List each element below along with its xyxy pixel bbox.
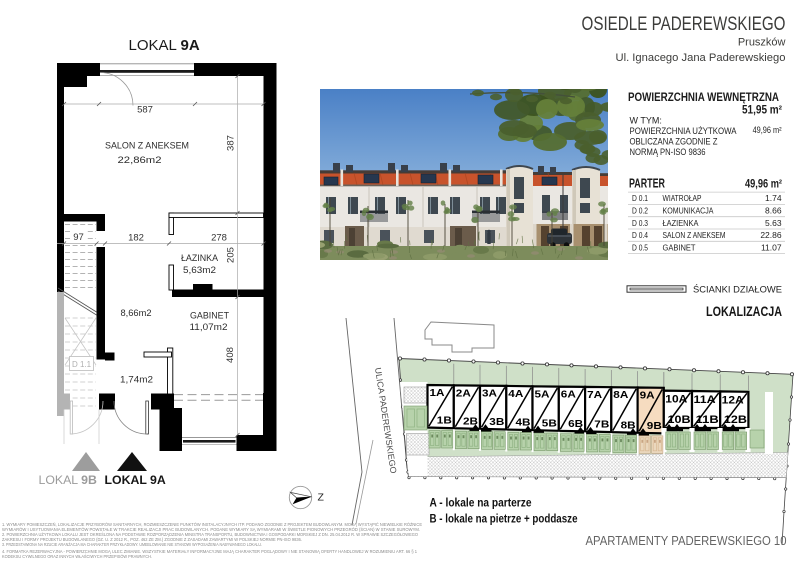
svg-text:POWIERZCHNIA WEWNĘTRZNA: POWIERZCHNIA WEWNĘTRZNA: [628, 90, 779, 104]
svg-text:SALON Z ANEKSEM: SALON Z ANEKSEM: [663, 230, 726, 240]
svg-text:1.74: 1.74: [765, 193, 782, 203]
svg-text:12B: 12B: [724, 414, 747, 426]
svg-text:LOKAL 9B: LOKAL 9B: [39, 473, 97, 487]
svg-text:LOKAL 9A: LOKAL 9A: [105, 473, 166, 487]
svg-text:ŁAZIENKA: ŁAZIENKA: [663, 218, 699, 228]
svg-text:B - lokale na pietrze + poddas: B - lokale na pietrze + poddasze: [430, 512, 578, 526]
svg-text:49,96 m²: 49,96 m²: [745, 179, 782, 191]
svg-text:205: 205: [226, 247, 237, 263]
svg-text:D 0.3: D 0.3: [632, 218, 648, 228]
svg-text:5,63m2: 5,63m2: [183, 265, 216, 276]
svg-text:11A: 11A: [694, 394, 716, 406]
svg-text:A - lokale na parterze: A - lokale na parterze: [430, 496, 532, 510]
svg-text:387: 387: [226, 135, 237, 151]
svg-text:22,86m2: 22,86m2: [118, 155, 162, 166]
svg-text:11B: 11B: [696, 414, 719, 426]
svg-text:Ul. Ignacego Jana Paderewskieg: Ul. Ignacego Jana Paderewskiego: [616, 52, 786, 64]
svg-text:49,96 m²: 49,96 m²: [753, 125, 782, 135]
svg-text:3A: 3A: [482, 388, 497, 400]
svg-text:GABINET: GABINET: [190, 311, 229, 322]
svg-text:51,95 m²: 51,95 m²: [742, 105, 782, 117]
svg-text:408: 408: [225, 347, 236, 363]
svg-text:Z: Z: [318, 492, 325, 504]
svg-text:587: 587: [137, 105, 153, 116]
svg-text:9B: 9B: [647, 420, 662, 432]
svg-text:11,07m2: 11,07m2: [190, 322, 228, 333]
svg-text:5A: 5A: [535, 388, 550, 400]
svg-text:KODEKSU CYWILNEGO ORAZ INNYCH: KODEKSU CYWILNEGO ORAZ INNYCH WŁAŚCIWYCH…: [2, 554, 152, 559]
svg-text:LOKALIZACJA: LOKALIZACJA: [706, 304, 782, 319]
svg-text:97: 97: [73, 232, 84, 243]
svg-text:12A: 12A: [722, 394, 744, 406]
svg-text:D 0.5: D 0.5: [632, 242, 648, 252]
svg-text:3B: 3B: [489, 416, 504, 428]
svg-text:1,74m2: 1,74m2: [120, 375, 153, 386]
svg-text:SALON Z ANEKSEM: SALON Z ANEKSEM: [105, 141, 189, 152]
svg-text:10B: 10B: [668, 414, 691, 426]
svg-text:22.86: 22.86: [760, 230, 782, 240]
svg-text:5.63: 5.63: [765, 218, 782, 228]
svg-text:3. PRZEDSTAWIONA NA RZUCIE ARA: 3. PRZEDSTAWIONA NA RZUCIE ARANŻACJA MA …: [2, 542, 262, 547]
svg-text:POWIERZCHNIA UŻYTKOWA: POWIERZCHNIA UŻYTKOWA: [630, 126, 737, 136]
svg-text:KOMUNIKACJA: KOMUNIKACJA: [663, 206, 714, 216]
svg-text:10A: 10A: [665, 394, 687, 406]
svg-text:8.66: 8.66: [765, 206, 782, 216]
svg-text:D 0.2: D 0.2: [632, 206, 648, 216]
svg-text:D 1.1: D 1.1: [72, 360, 92, 369]
svg-text:APARTAMENTY PADEREWSKIEGO 10: APARTAMENTY PADEREWSKIEGO 10: [586, 533, 787, 548]
svg-text:278: 278: [211, 233, 227, 244]
svg-text:Pruszków: Pruszków: [738, 37, 786, 49]
svg-text:1A: 1A: [430, 387, 445, 399]
svg-text:OBLICZANA ZGODNIE Z: OBLICZANA ZGODNIE Z: [630, 137, 718, 147]
svg-text:OSIEDLE PADEREWSKIEGO: OSIEDLE PADEREWSKIEGO: [582, 14, 786, 35]
svg-text:ŚCIANKI DZIAŁOWE: ŚCIANKI DZIAŁOWE: [693, 284, 782, 296]
svg-text:182: 182: [128, 233, 144, 244]
svg-text:7A: 7A: [587, 389, 602, 401]
svg-text:1B: 1B: [437, 415, 452, 427]
svg-text:ŁAZINKA: ŁAZINKA: [181, 253, 219, 264]
svg-text:NORMĄ PN-ISO 9836: NORMĄ PN-ISO 9836: [630, 147, 706, 157]
svg-text:2A: 2A: [456, 387, 471, 399]
svg-text:7B: 7B: [594, 419, 609, 431]
svg-text:D 0.1: D 0.1: [632, 193, 648, 203]
svg-text:6A: 6A: [561, 389, 576, 401]
svg-text:LOKAL 9A: LOKAL 9A: [129, 37, 200, 54]
svg-text:9A: 9A: [640, 390, 655, 402]
svg-text:D 0.4: D 0.4: [632, 230, 648, 240]
svg-text:5B: 5B: [542, 417, 557, 429]
svg-text:4A: 4A: [508, 388, 523, 400]
svg-text:8A: 8A: [613, 389, 628, 401]
svg-text:W TYM:: W TYM:: [630, 116, 662, 126]
svg-text:WIATROŁAP: WIATROŁAP: [663, 193, 702, 203]
svg-text:11.07: 11.07: [761, 242, 782, 252]
svg-text:8,66m2: 8,66m2: [121, 308, 152, 319]
svg-text:PARTER: PARTER: [629, 177, 665, 191]
svg-text:GABINET: GABINET: [663, 242, 696, 252]
svg-text:ULICA PADEREWSKIEGO: ULICA PADEREWSKIEGO: [373, 367, 399, 475]
